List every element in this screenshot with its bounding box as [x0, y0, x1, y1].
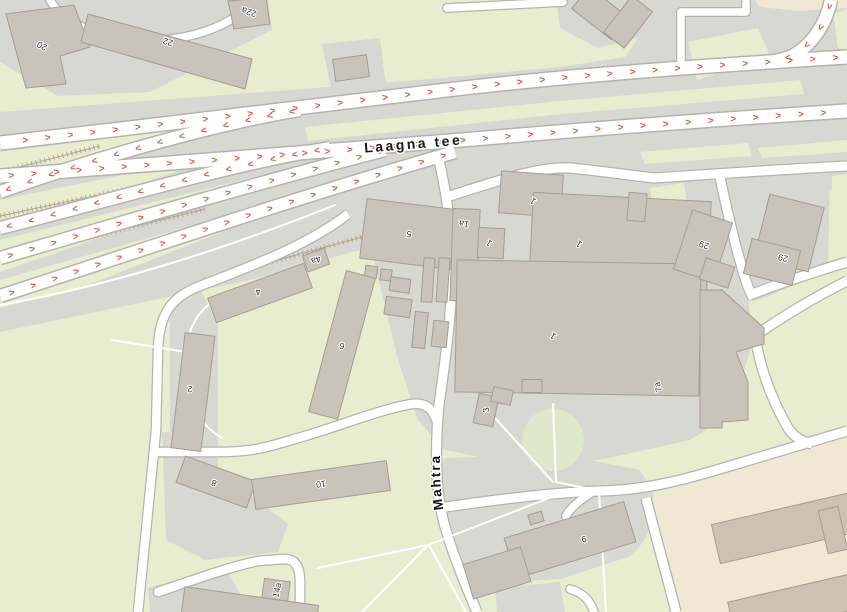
building: [389, 277, 411, 294]
housenumber-1a: 1a: [458, 218, 469, 229]
building: [522, 380, 542, 393]
building: [333, 55, 370, 82]
housenumber-10: 10: [315, 478, 326, 489]
building: [421, 258, 435, 303]
building: [384, 296, 412, 317]
building: [436, 258, 450, 303]
green-wedge-29east: [830, 174, 847, 264]
map-canvas[interactable]: < < < < < < < < < < < < < < < < < < < < …: [0, 0, 847, 612]
building: [627, 192, 647, 221]
building: [431, 320, 449, 347]
building-1-main: [455, 260, 701, 396]
map-viewport[interactable]: < < < < < < < < < < < < < < < < < < < < …: [0, 0, 847, 612]
